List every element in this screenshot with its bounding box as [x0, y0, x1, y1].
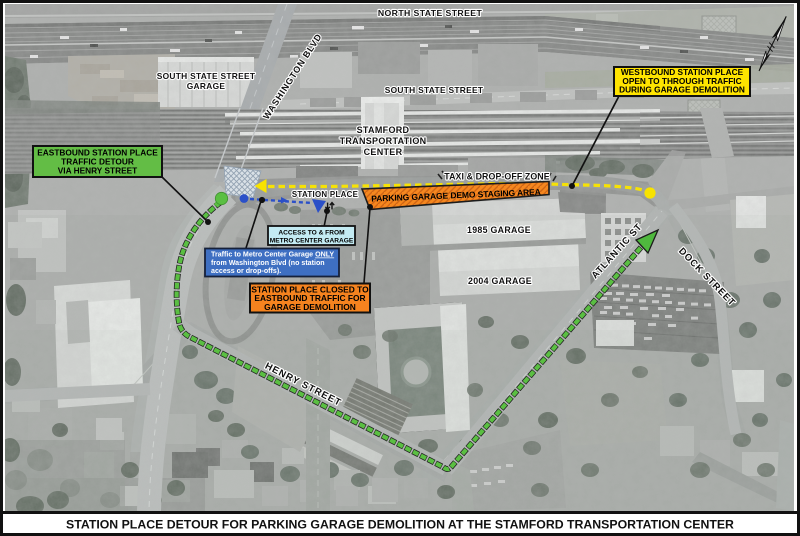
svg-text:TAXI & DROP-OFF ZONE: TAXI & DROP-OFF ZONE — [444, 172, 549, 182]
svg-text:DURING GARAGE DEMOLITION: DURING GARAGE DEMOLITION — [619, 84, 745, 94]
svg-text:TRANSPORTATION: TRANSPORTATION — [340, 136, 427, 146]
svg-text:VIA HENRY STREET: VIA HENRY STREET — [58, 166, 137, 176]
svg-text:STATION PLACE: STATION PLACE — [292, 190, 358, 199]
svg-text:SOUTH STATE STREET: SOUTH STATE STREET — [157, 71, 256, 81]
svg-text:CENTER: CENTER — [364, 147, 403, 157]
svg-text:Traffic to Metro Center Garage: Traffic to Metro Center Garage ONLY — [211, 251, 334, 259]
svg-text:STAMFORD: STAMFORD — [357, 125, 410, 135]
svg-text:ACCESS TO & FROM: ACCESS TO & FROM — [278, 230, 345, 237]
svg-text:access or drop-offs).: access or drop-offs). — [211, 267, 281, 275]
svg-text:1985 GARAGE: 1985 GARAGE — [467, 225, 531, 235]
svg-text:STATION PLACE DETOUR FOR PARKI: STATION PLACE DETOUR FOR PARKING GARAGE … — [66, 518, 734, 532]
svg-text:NORTH STATE STREET: NORTH STATE STREET — [378, 8, 483, 18]
svg-text:SOUTH STATE STREET: SOUTH STATE STREET — [385, 85, 484, 95]
svg-text:2004 GARAGE: 2004 GARAGE — [468, 276, 532, 286]
svg-text:GARAGE DEMOLITION: GARAGE DEMOLITION — [264, 302, 356, 312]
svg-text:METRO CENTER GARAGE: METRO CENTER GARAGE — [270, 238, 354, 245]
svg-text:GARAGE: GARAGE — [187, 81, 226, 91]
svg-text:from Washington Blvd (no stati: from Washington Blvd (no station — [211, 259, 325, 267]
